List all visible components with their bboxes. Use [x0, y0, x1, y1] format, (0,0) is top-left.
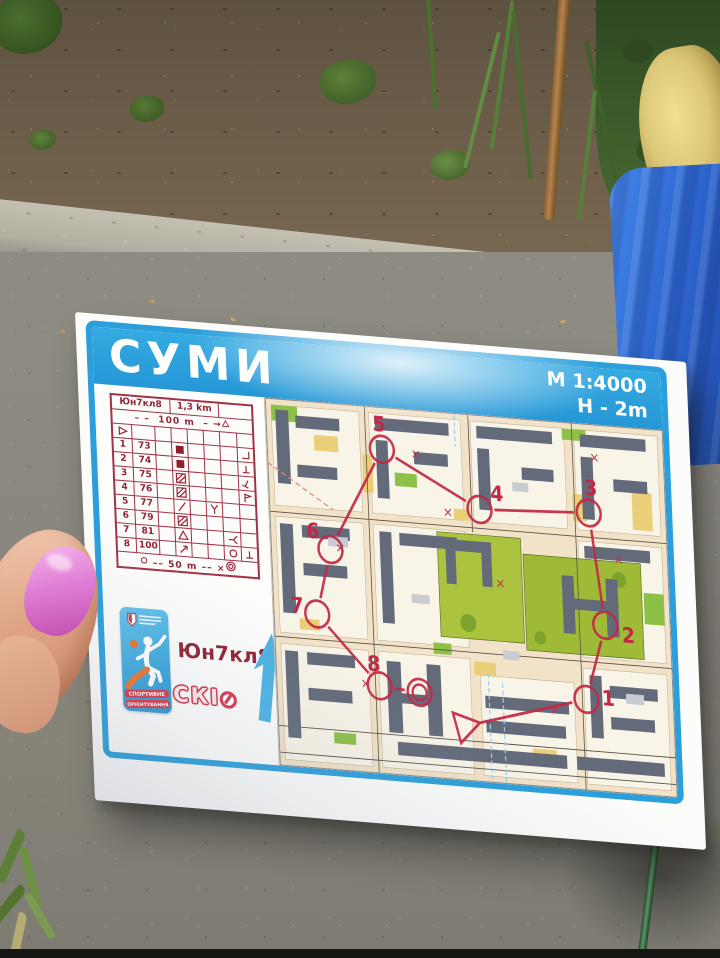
position-symbol [238, 475, 255, 491]
scale-block: M 1:4000 H - 2m [546, 368, 648, 424]
position-symbol [238, 461, 255, 477]
svg-text:СПОРТИВНЕ: СПОРТИВНЕ [128, 692, 165, 698]
corner-se-icon [240, 449, 252, 461]
circle-icon [227, 547, 239, 559]
position-symbol [237, 447, 254, 463]
leaf-debris [150, 300, 155, 303]
control-number-6: 6 [306, 518, 320, 544]
control-number-5: 5 [372, 411, 386, 437]
flag-icon [241, 491, 253, 503]
svg-text:ОРІЄНТУВАННЯ: ОРІЄНТУВАННЯ [127, 702, 169, 709]
club-name: СКІ [173, 682, 238, 712]
control-number-7: 7 [290, 592, 304, 618]
t-bar-icon [240, 463, 252, 475]
feature-symbol [172, 470, 189, 486]
feature-symbol [174, 498, 191, 514]
photo-of-orienteering-map: СУМИ M 1:4000 H - 2m Юн7кл81,3 km– – 100… [0, 0, 720, 958]
compass-icon [220, 691, 238, 710]
triangle-icon [221, 419, 229, 428]
control-number-4: 4 [490, 480, 504, 506]
leaf-debris [60, 330, 65, 333]
feature-symbol [173, 484, 190, 500]
arrow-ne-icon [178, 543, 190, 555]
bend-icon [227, 533, 239, 545]
club-sticker: СПОРТИВНЕ ОРІЄНТУВАННЯ [119, 606, 172, 714]
filled-square-icon [175, 457, 187, 469]
course-leg [395, 688, 405, 690]
position-symbol [239, 490, 256, 506]
map-title: СУМИ [108, 334, 278, 393]
filled-square-icon [174, 443, 186, 455]
control-number-8: 8 [367, 650, 381, 676]
finish-icon [225, 560, 237, 572]
slash-icon [177, 500, 189, 512]
feature-symbol [175, 541, 192, 557]
fork-icon [209, 503, 221, 515]
feature-symbol [172, 456, 189, 472]
orienteering-map: 12345678 [265, 397, 678, 798]
triangle-icon [178, 529, 190, 541]
control-number-3: 3 [584, 475, 598, 501]
start-tri-icon [117, 424, 129, 436]
control-number-1: 1 [601, 685, 615, 711]
blue-map-frame: СУМИ M 1:4000 H - 2m Юн7кл81,3 km– – 100… [85, 320, 684, 805]
t-bar-icon [244, 548, 256, 560]
feature-symbol [175, 527, 192, 543]
position-symbol [240, 518, 257, 534]
map-area: 12345678 [264, 397, 678, 798]
control-number-2: 2 [621, 622, 635, 648]
feature-symbol [171, 441, 188, 457]
t-bar-tilt-icon [241, 477, 253, 489]
hatched-square-icon [177, 514, 189, 526]
feature-symbol [174, 513, 191, 529]
hatched-square-icon [175, 472, 187, 484]
sticker-ribbons: СПОРТИВНЕ ОРІЄНТУВАННЯ [124, 689, 170, 708]
sheet-left-column: Юн7кл81,3 km– – 100 m – →173274375476577… [94, 383, 279, 765]
control-description-card: Юн7кл81,3 km– – 100 m – →173274375476577… [110, 393, 261, 579]
orienteering-map-sheet: СУМИ M 1:4000 H - 2m Юн7кл81,3 km– – 100… [75, 312, 706, 850]
photo-edge [0, 949, 720, 958]
hatched-square-icon [176, 486, 188, 498]
position-symbol [240, 532, 257, 548]
runner-icon [126, 633, 167, 689]
position-symbol [239, 504, 256, 520]
circle-icon [139, 555, 148, 565]
position-symbol [241, 546, 258, 562]
